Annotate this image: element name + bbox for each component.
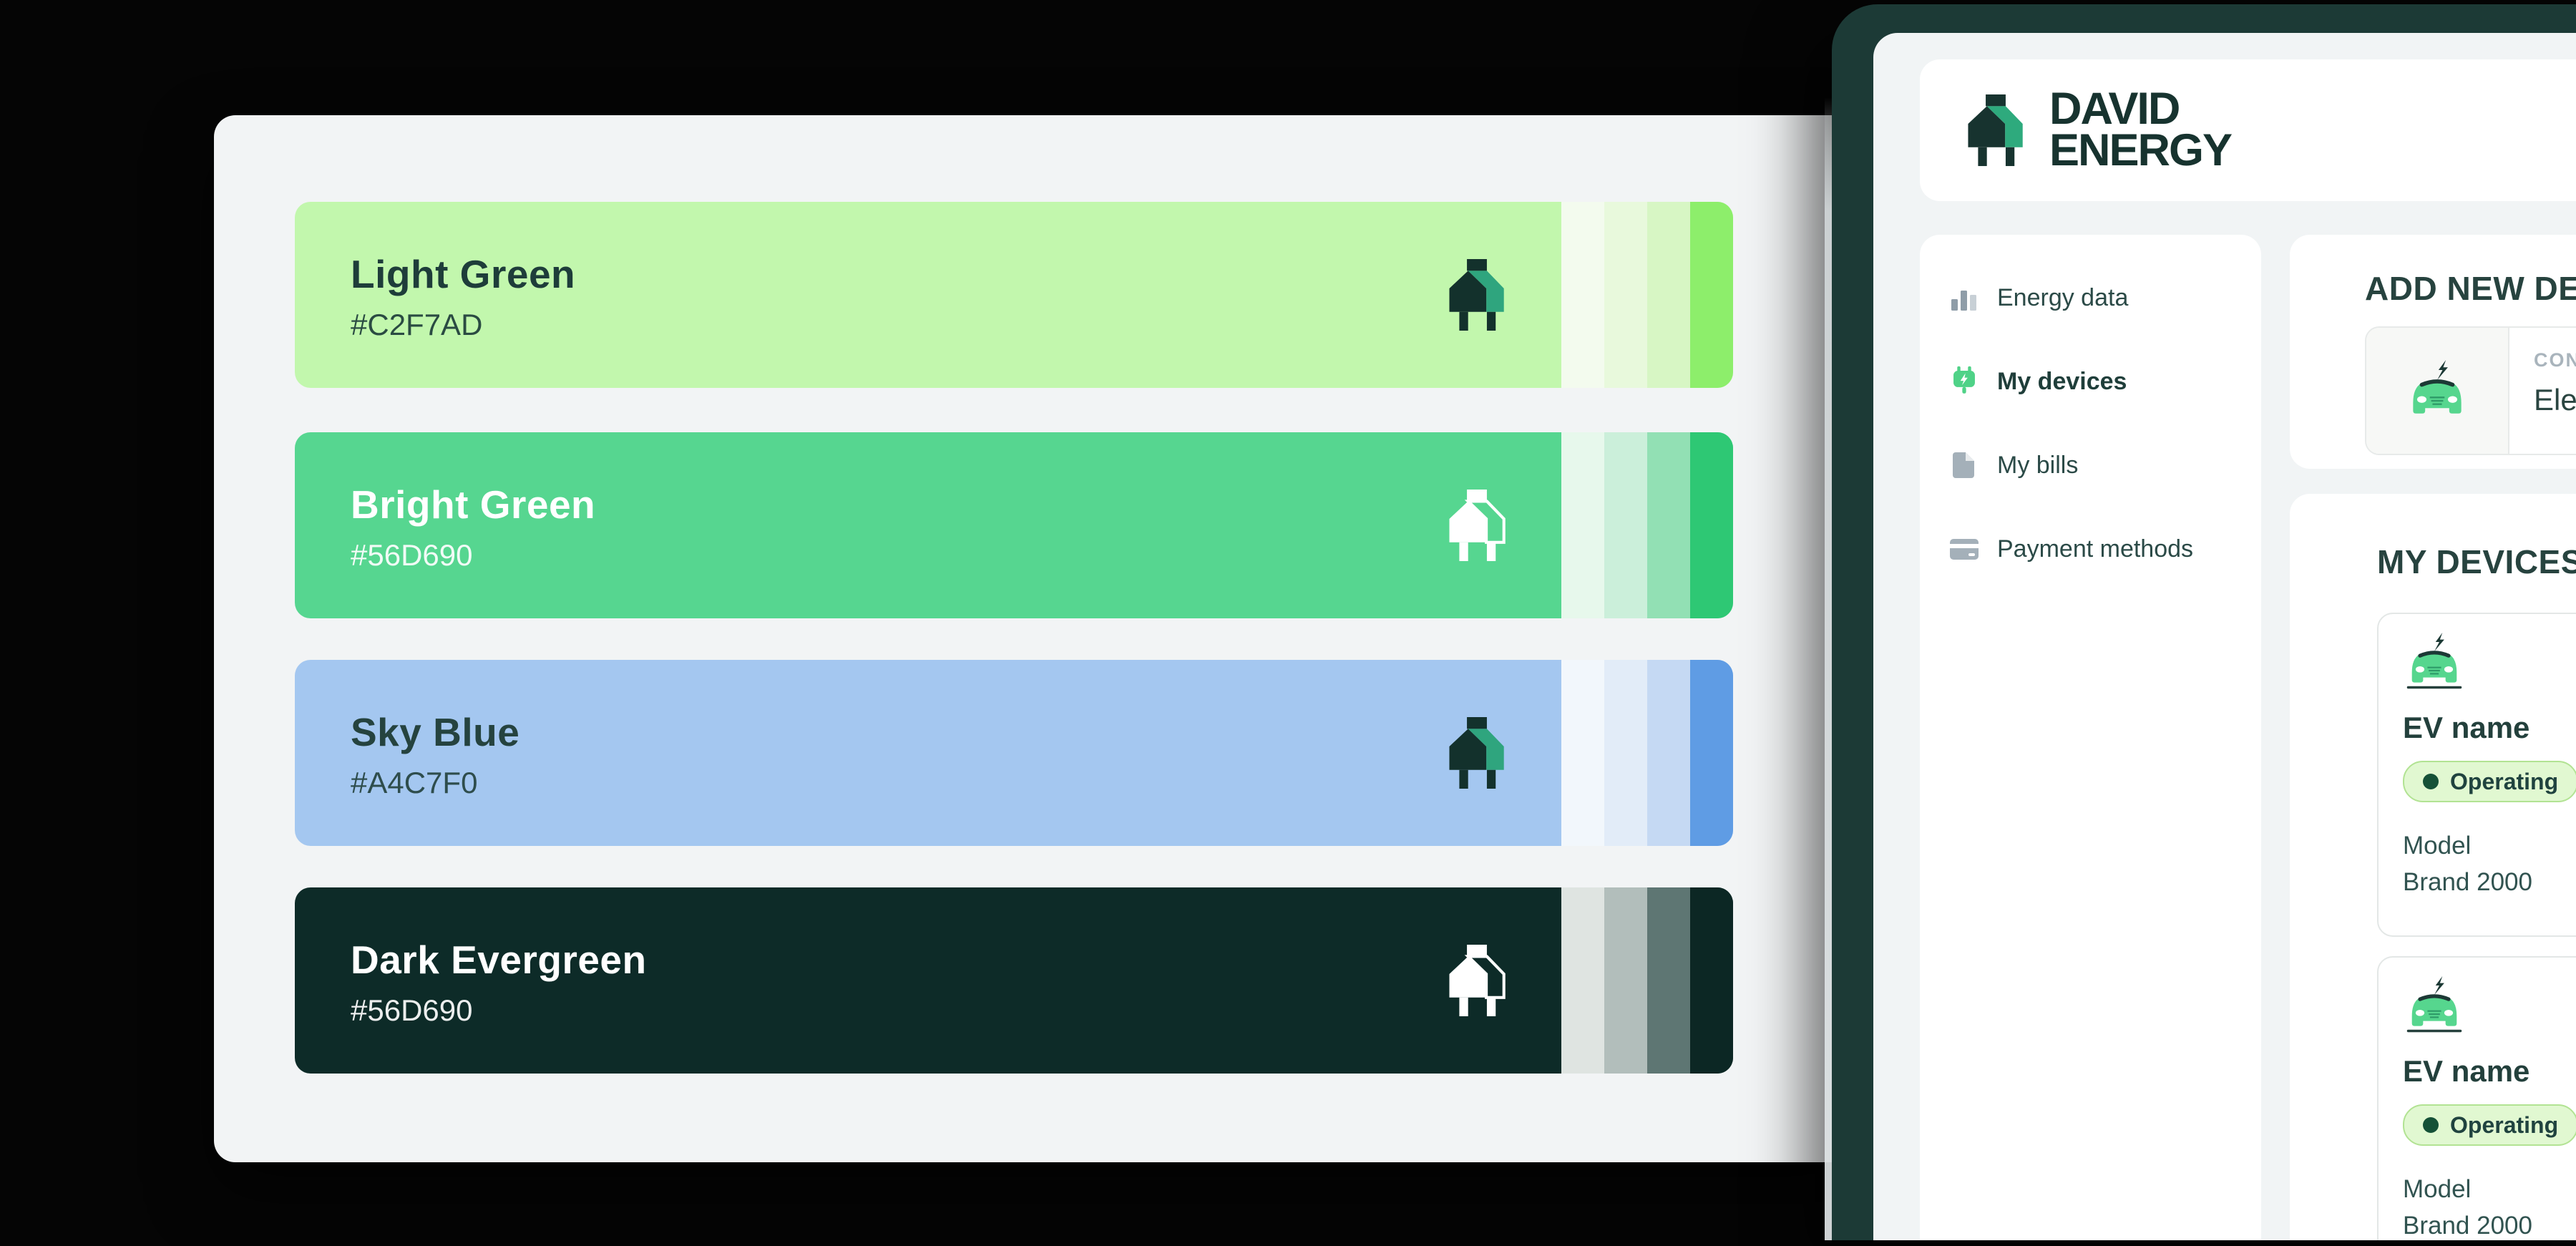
device-name: EV name bbox=[2403, 711, 2576, 745]
plug-mark-icon bbox=[1448, 490, 1506, 561]
bar-chart-icon bbox=[1948, 282, 1980, 313]
status-label: Operating bbox=[2450, 1112, 2558, 1139]
ev-car-icon bbox=[2403, 360, 2472, 422]
tint-strip bbox=[1690, 887, 1733, 1074]
add-new-device-card: ADD NEW DEVI bbox=[2290, 235, 2576, 469]
app-screen: DAVID ENERGY Energy data bbox=[1873, 33, 2576, 1240]
status-label: Operating bbox=[2450, 769, 2558, 795]
plug-mark-icon bbox=[1448, 259, 1506, 331]
swatch-light-green: Light Green #C2F7AD bbox=[295, 202, 1733, 388]
status-dot-icon bbox=[2423, 1117, 2439, 1133]
tint-strip bbox=[1690, 202, 1733, 388]
device-name: EV name bbox=[2403, 1054, 2576, 1089]
palette-board: Light Green #C2F7AD Bright Green #56D690 bbox=[214, 115, 1868, 1162]
swatch-dark-evergreen: Dark Evergreen #56D690 bbox=[295, 887, 1733, 1074]
swatch-info: Dark Evergreen #56D690 bbox=[351, 940, 647, 1026]
sidebar-item-my-bills[interactable]: My bills bbox=[1948, 444, 2261, 487]
model-value: Brand 2000 bbox=[2403, 1208, 2576, 1240]
status-badge: Operating bbox=[2403, 1104, 2576, 1146]
page: Light Green #C2F7AD Bright Green #56D690 bbox=[0, 0, 2576, 1246]
main-content: ADD NEW DEVI bbox=[2290, 235, 2576, 1240]
swatch-info: Bright Green #56D690 bbox=[351, 485, 595, 570]
swatch-title: Bright Green bbox=[351, 485, 595, 525]
device-model: Model Brand 2000 bbox=[2403, 828, 2576, 901]
swatch-hex: #A4C7F0 bbox=[351, 768, 519, 798]
wordmark-line1: DAVID bbox=[2049, 89, 2231, 130]
swatch-title: Dark Evergreen bbox=[351, 940, 647, 980]
david-energy-logo-icon bbox=[1966, 86, 2025, 175]
swatch-title: Light Green bbox=[351, 255, 575, 294]
sidebar-item-payment-methods[interactable]: Payment methods bbox=[1948, 527, 2261, 570]
device-entry: EV name Operating Model Brand 2000 bbox=[2377, 613, 2576, 937]
status-badge: Operating bbox=[2403, 761, 2576, 802]
add-new-device-heading: ADD NEW DEVI bbox=[2365, 269, 2576, 308]
tint-strip bbox=[1561, 660, 1604, 846]
option-text: CON Elec bbox=[2509, 328, 2576, 454]
sidebar-item-label: My devices bbox=[1997, 368, 2127, 396]
model-label: Model bbox=[2403, 1172, 2576, 1208]
swatch-info: Sky Blue #A4C7F0 bbox=[351, 713, 519, 798]
sidebar-item-label: Payment methods bbox=[1997, 535, 2193, 563]
sidebar-item-my-devices[interactable]: My devices bbox=[1948, 360, 2261, 403]
tint-strip bbox=[1690, 432, 1733, 618]
tint-strip bbox=[1647, 660, 1690, 846]
tint-strip bbox=[1604, 887, 1647, 1074]
sidebar: Energy data My devices bbox=[1920, 235, 2261, 1240]
plug-mark-icon bbox=[1448, 717, 1506, 789]
tint-strips bbox=[1561, 887, 1733, 1074]
swatch-hex: #56D690 bbox=[351, 540, 595, 570]
my-devices-heading: MY DEVICES bbox=[2377, 542, 2576, 581]
tint-strip bbox=[1561, 887, 1604, 1074]
tint-strip bbox=[1561, 202, 1604, 388]
swatch-sky-blue: Sky Blue #A4C7F0 bbox=[295, 660, 1733, 846]
wordmark-line2: ENERGY bbox=[2049, 130, 2231, 172]
sidebar-item-energy-data[interactable]: Energy data bbox=[1948, 276, 2261, 319]
tint-strip bbox=[1604, 660, 1647, 846]
document-icon bbox=[1948, 449, 1980, 481]
sidebar-item-label: Energy data bbox=[1997, 284, 2128, 312]
sidebar-item-label: My bills bbox=[1997, 452, 2078, 480]
tint-strip bbox=[1647, 887, 1690, 1074]
swatch-hex: #56D690 bbox=[351, 996, 647, 1026]
tint-strips bbox=[1561, 432, 1733, 618]
option-icon-cell bbox=[2366, 328, 2509, 454]
swatch-title: Sky Blue bbox=[351, 713, 519, 752]
model-label: Model bbox=[2403, 828, 2576, 865]
tint-strip bbox=[1561, 432, 1604, 618]
my-devices-card: MY DEVICES EV bbox=[2290, 494, 2576, 1240]
ev-car-icon bbox=[2403, 976, 2466, 1033]
model-value: Brand 2000 bbox=[2403, 865, 2576, 901]
app-header: DAVID ENERGY bbox=[1920, 59, 2576, 201]
tint-strips bbox=[1561, 660, 1733, 846]
swatch-bright-green: Bright Green #56D690 bbox=[295, 432, 1733, 618]
device-type-option-electric-vehicle[interactable]: CON Elec bbox=[2365, 326, 2576, 455]
device-side-edge bbox=[1825, 97, 1832, 1240]
device-model: Model Brand 2000 bbox=[2403, 1172, 2576, 1240]
swatch-info: Light Green #C2F7AD bbox=[351, 255, 575, 340]
david-energy-wordmark: DAVID ENERGY bbox=[2049, 89, 2231, 172]
option-kicker: CON bbox=[2534, 349, 2576, 371]
tint-strip bbox=[1647, 202, 1690, 388]
tablet-mockup: DAVID ENERGY Energy data bbox=[1832, 4, 2576, 1240]
plug-icon bbox=[1948, 366, 1980, 397]
tint-strips bbox=[1561, 202, 1733, 388]
device-entry: EV name Operating Model Brand 2000 bbox=[2377, 956, 2576, 1240]
option-label: Elec bbox=[2534, 383, 2576, 417]
swatch-hex: #C2F7AD bbox=[351, 310, 575, 340]
tint-strip bbox=[1647, 432, 1690, 618]
tint-strip bbox=[1604, 202, 1647, 388]
plug-mark-icon bbox=[1448, 945, 1506, 1016]
tint-strip bbox=[1604, 432, 1647, 618]
tint-strip bbox=[1690, 660, 1733, 846]
status-dot-icon bbox=[2423, 774, 2439, 789]
ev-car-icon bbox=[2403, 633, 2466, 690]
credit-card-icon bbox=[1948, 533, 1980, 565]
